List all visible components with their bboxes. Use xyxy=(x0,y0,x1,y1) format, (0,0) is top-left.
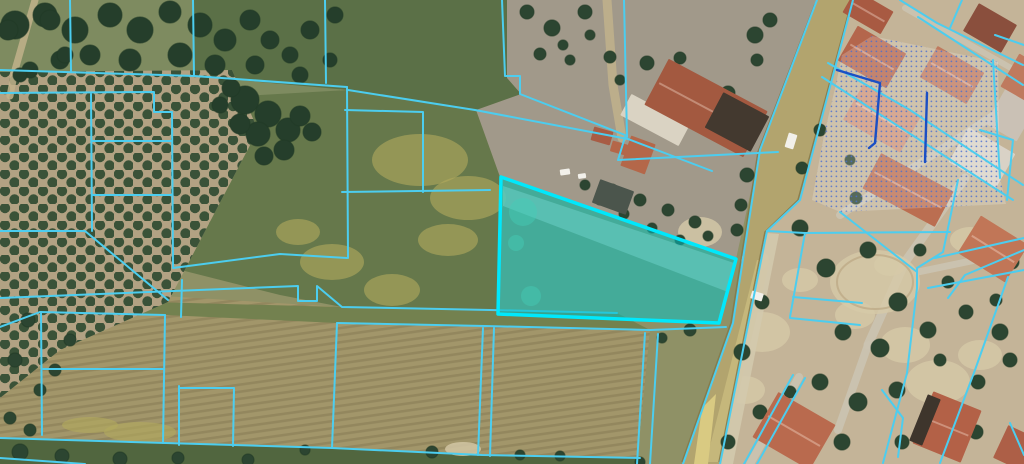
tree xyxy=(747,27,763,43)
tree xyxy=(188,13,212,37)
tree xyxy=(80,45,100,65)
tree xyxy=(895,435,909,449)
tree xyxy=(889,293,907,311)
tree xyxy=(127,17,153,43)
tree xyxy=(55,449,69,463)
tree xyxy=(0,20,18,40)
tree xyxy=(113,452,127,464)
tree xyxy=(860,242,876,258)
tree xyxy=(615,75,625,85)
tree xyxy=(230,114,250,134)
parcel-boundary-line xyxy=(70,0,71,71)
tree xyxy=(817,259,835,277)
stipple-dots xyxy=(812,36,1006,212)
tree xyxy=(222,79,240,97)
tree xyxy=(62,17,88,43)
tree xyxy=(98,3,122,27)
tree xyxy=(849,393,867,411)
tree xyxy=(835,324,851,340)
tree xyxy=(34,384,46,396)
tree xyxy=(246,56,264,74)
tree xyxy=(205,55,225,75)
tree xyxy=(64,334,76,346)
tree xyxy=(735,199,747,211)
tree xyxy=(292,67,308,83)
parcel-boundary-line xyxy=(347,87,348,258)
tree xyxy=(240,10,260,30)
tree xyxy=(942,276,954,288)
tree xyxy=(585,30,595,40)
cadastral-map[interactable] xyxy=(0,0,1024,464)
tree xyxy=(684,324,696,336)
tree xyxy=(703,231,713,241)
parcel-boundary-line xyxy=(193,0,194,76)
tree xyxy=(920,322,936,338)
tree xyxy=(255,147,273,165)
parcel-boundary-line xyxy=(325,0,326,83)
tree xyxy=(934,354,946,366)
tree xyxy=(159,1,181,23)
tree xyxy=(4,412,16,424)
tree xyxy=(763,13,777,27)
tree xyxy=(303,123,321,141)
tree xyxy=(274,140,294,160)
tree xyxy=(731,224,743,236)
tree xyxy=(301,21,319,39)
tree xyxy=(674,52,686,64)
flower-patch xyxy=(430,176,506,220)
tree xyxy=(640,56,654,70)
tree xyxy=(282,47,298,63)
tree xyxy=(604,51,616,63)
tree xyxy=(689,216,701,228)
tree xyxy=(834,434,850,450)
tree xyxy=(796,162,808,174)
parcel-boundary-line xyxy=(91,94,92,231)
tree xyxy=(578,5,592,19)
flower-patch xyxy=(418,224,478,256)
tree xyxy=(40,10,60,30)
tree xyxy=(740,168,754,182)
tree xyxy=(8,353,22,367)
tree xyxy=(12,444,28,460)
sand-patch xyxy=(782,268,818,292)
tree xyxy=(662,204,674,216)
parcel-boundary-line xyxy=(181,280,182,317)
flower-patch xyxy=(364,274,420,306)
tree xyxy=(290,106,310,126)
tree xyxy=(565,55,575,65)
tree xyxy=(212,97,228,113)
flower-patch xyxy=(276,219,320,245)
tree xyxy=(634,194,646,206)
tree xyxy=(992,324,1008,340)
tree xyxy=(544,20,560,36)
map-viewport xyxy=(0,0,1024,464)
tree xyxy=(242,454,254,464)
tree xyxy=(580,180,590,190)
tree xyxy=(327,7,343,23)
tree xyxy=(261,31,279,49)
tree xyxy=(534,48,546,60)
tree xyxy=(520,5,534,19)
flower-patch xyxy=(300,244,364,280)
tree xyxy=(172,452,184,464)
tree xyxy=(914,244,926,256)
tree xyxy=(871,339,889,357)
tree xyxy=(959,305,973,319)
tree xyxy=(1003,353,1017,367)
tree xyxy=(812,374,828,390)
tree xyxy=(751,54,763,66)
tree xyxy=(558,40,568,50)
tree xyxy=(24,424,36,436)
tree xyxy=(214,29,236,51)
tree xyxy=(168,43,192,67)
stippled-zone xyxy=(812,36,1006,212)
parcel-boundary-line xyxy=(41,312,42,435)
flower-patch xyxy=(62,417,118,433)
tree xyxy=(119,49,141,71)
